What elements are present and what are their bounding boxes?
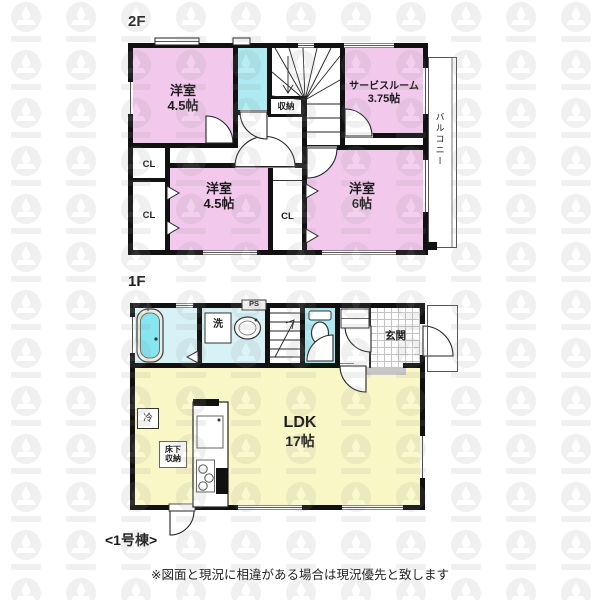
- floorplan-image: 2F バルコニー 洋室 4.5帖 サービスルーム 3.75帖 収納 CL CL …: [0, 0, 600, 600]
- room-c-label: 洋室 6帖: [307, 181, 417, 212]
- washer-label: 洗: [205, 319, 231, 331]
- ldk-name: LDK: [284, 414, 317, 431]
- floor1-label: 1F: [128, 273, 146, 291]
- ldk-label: LDK 17帖: [240, 414, 360, 452]
- entrance-label: 玄関: [371, 330, 420, 342]
- service-room-size: 3.75帖: [368, 93, 400, 105]
- closet-middle-label: CL: [272, 211, 303, 222]
- service-room-label: サービスルーム 3.75帖: [343, 81, 425, 106]
- floor2-label: 2F: [128, 13, 146, 31]
- closet-left-bottom-label: CL: [133, 210, 165, 221]
- storage-label: 収納: [270, 101, 302, 111]
- disclaimer-text: ※図面と現況に相違がある場合は現況優先と致します: [60, 568, 540, 583]
- room-a-size: 4.5帖: [167, 98, 198, 113]
- floor-storage-line2: 収納: [165, 454, 181, 463]
- building-label: <1号棟>: [105, 532, 157, 549]
- service-room-name: サービスルーム: [349, 81, 419, 92]
- floor1-toilet: [305, 308, 335, 363]
- washroom: [202, 308, 265, 363]
- floor-storage-label: 床下 収納: [159, 445, 187, 464]
- room-b-size: 4.5帖: [203, 196, 234, 211]
- fridge-label: 冷: [137, 413, 159, 424]
- floor2-toilet: [238, 48, 267, 110]
- room-a-label: 洋室 4.5帖: [133, 83, 233, 114]
- porch-outline: [428, 306, 458, 372]
- balcony-label: バルコニー: [434, 112, 445, 167]
- floor-storage-line1: 床下: [165, 445, 181, 454]
- pipe-space-label: PS: [242, 300, 266, 309]
- ldk-size: 17帖: [285, 433, 315, 449]
- room-b-label: 洋室 4.5帖: [170, 181, 268, 212]
- room-c-size: 6帖: [352, 196, 372, 211]
- room-a-name: 洋室: [170, 83, 196, 98]
- room-b-name: 洋室: [206, 181, 232, 196]
- room-c-name: 洋室: [349, 181, 375, 196]
- bathroom: [135, 308, 197, 363]
- closet-left-top-label: CL: [133, 159, 165, 170]
- entrance-step: [354, 367, 406, 375]
